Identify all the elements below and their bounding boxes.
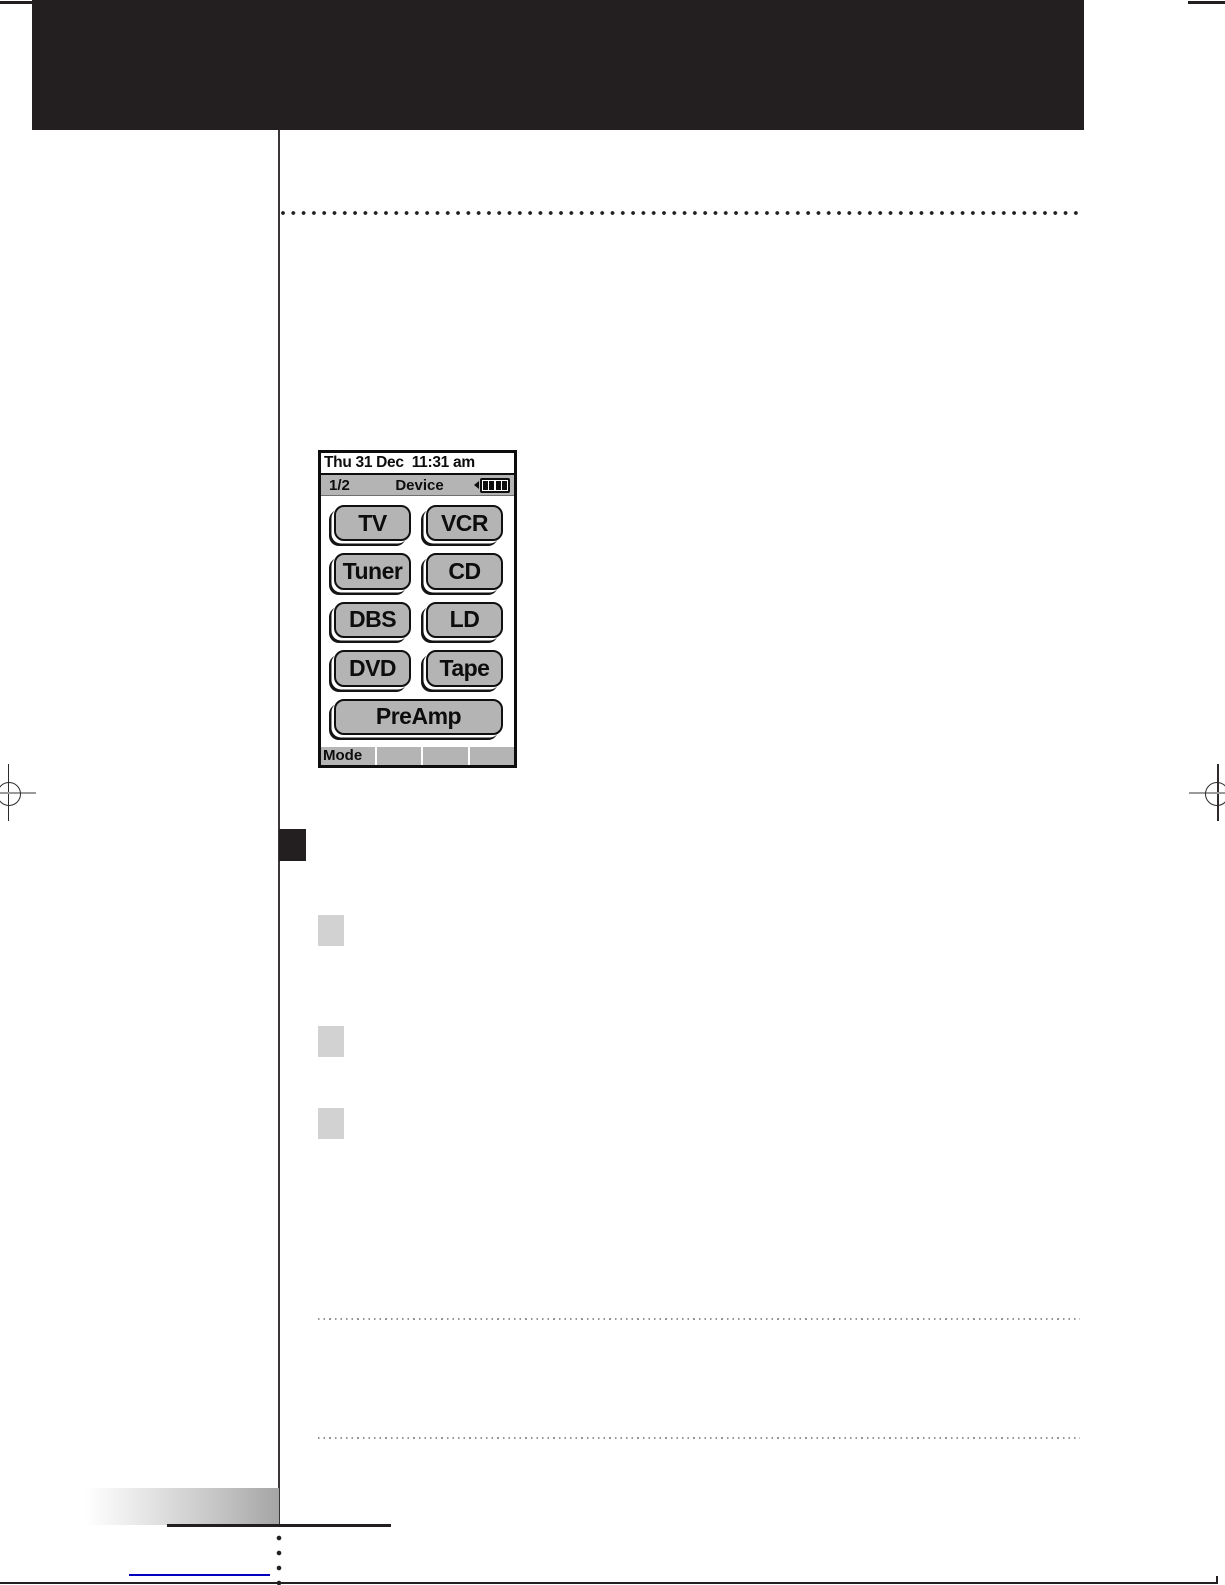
device-button-dbs[interactable]: DBS: [334, 602, 411, 638]
footer-gradient-bar: [86, 1488, 279, 1525]
battery-nub-icon: [474, 481, 479, 489]
note-dotted-rule-2: [318, 1437, 1080, 1439]
remote-screen: Thu 31 Dec 11:31 am 1/2 Device TV VCR Tu…: [318, 450, 517, 768]
device-button-vcr[interactable]: VCR: [426, 505, 503, 541]
device-button-tape[interactable]: Tape: [426, 650, 503, 686]
registration-mark-left-icon: [0, 782, 21, 806]
page-bottom-rule-tick: [1216, 1576, 1218, 1584]
crop-mark-top-left: [0, 1, 38, 4]
step-number-box-2: [318, 1026, 344, 1057]
step-number-box-1: [318, 915, 344, 946]
note-dotted-rule-1: [318, 1318, 1080, 1320]
section-dotted-divider: [281, 210, 1083, 216]
page-indicator: 1/2: [329, 477, 365, 494]
section-marker-square: [279, 829, 306, 861]
header-bar: [32, 0, 1084, 130]
remote-status-bar: 1/2 Device: [321, 475, 514, 496]
crop-mark-top-right: [1188, 1, 1225, 4]
device-button-grid: TV VCR Tuner CD DBS LD DVD Tape PreAmp: [321, 496, 514, 747]
mode-softkey[interactable]: Mode: [321, 747, 375, 765]
battery-bars-icon: [480, 478, 510, 493]
device-mode-label: Device: [365, 477, 474, 494]
device-button-dvd[interactable]: DVD: [334, 650, 411, 686]
footer-rule: [167, 1524, 391, 1527]
page-bottom-rule: [0, 1582, 1218, 1584]
step-number-box-3: [318, 1108, 344, 1139]
manual-page: Thu 31 Dec 11:31 am 1/2 Device TV VCR Tu…: [0, 0, 1225, 1585]
device-button-tv[interactable]: TV: [334, 505, 411, 541]
registration-mark-right-icon: [1205, 782, 1225, 806]
margin-rule: [278, 130, 280, 1524]
battery-icon: [474, 478, 510, 493]
device-button-tuner[interactable]: Tuner: [334, 553, 411, 589]
softkey-segment-empty[interactable]: [377, 747, 421, 765]
device-button-ld[interactable]: LD: [426, 602, 503, 638]
device-button-preamp[interactable]: PreAmp: [334, 699, 503, 735]
footer-dotted-joint: [276, 1533, 282, 1585]
remote-title-bar: Thu 31 Dec 11:31 am: [321, 453, 514, 475]
footer-link-underline: [129, 1574, 270, 1576]
remote-softkey-bar: Mode: [321, 747, 514, 765]
softkey-segment-empty[interactable]: [423, 747, 467, 765]
device-button-cd[interactable]: CD: [426, 553, 503, 589]
softkey-segment-empty[interactable]: [470, 747, 514, 765]
